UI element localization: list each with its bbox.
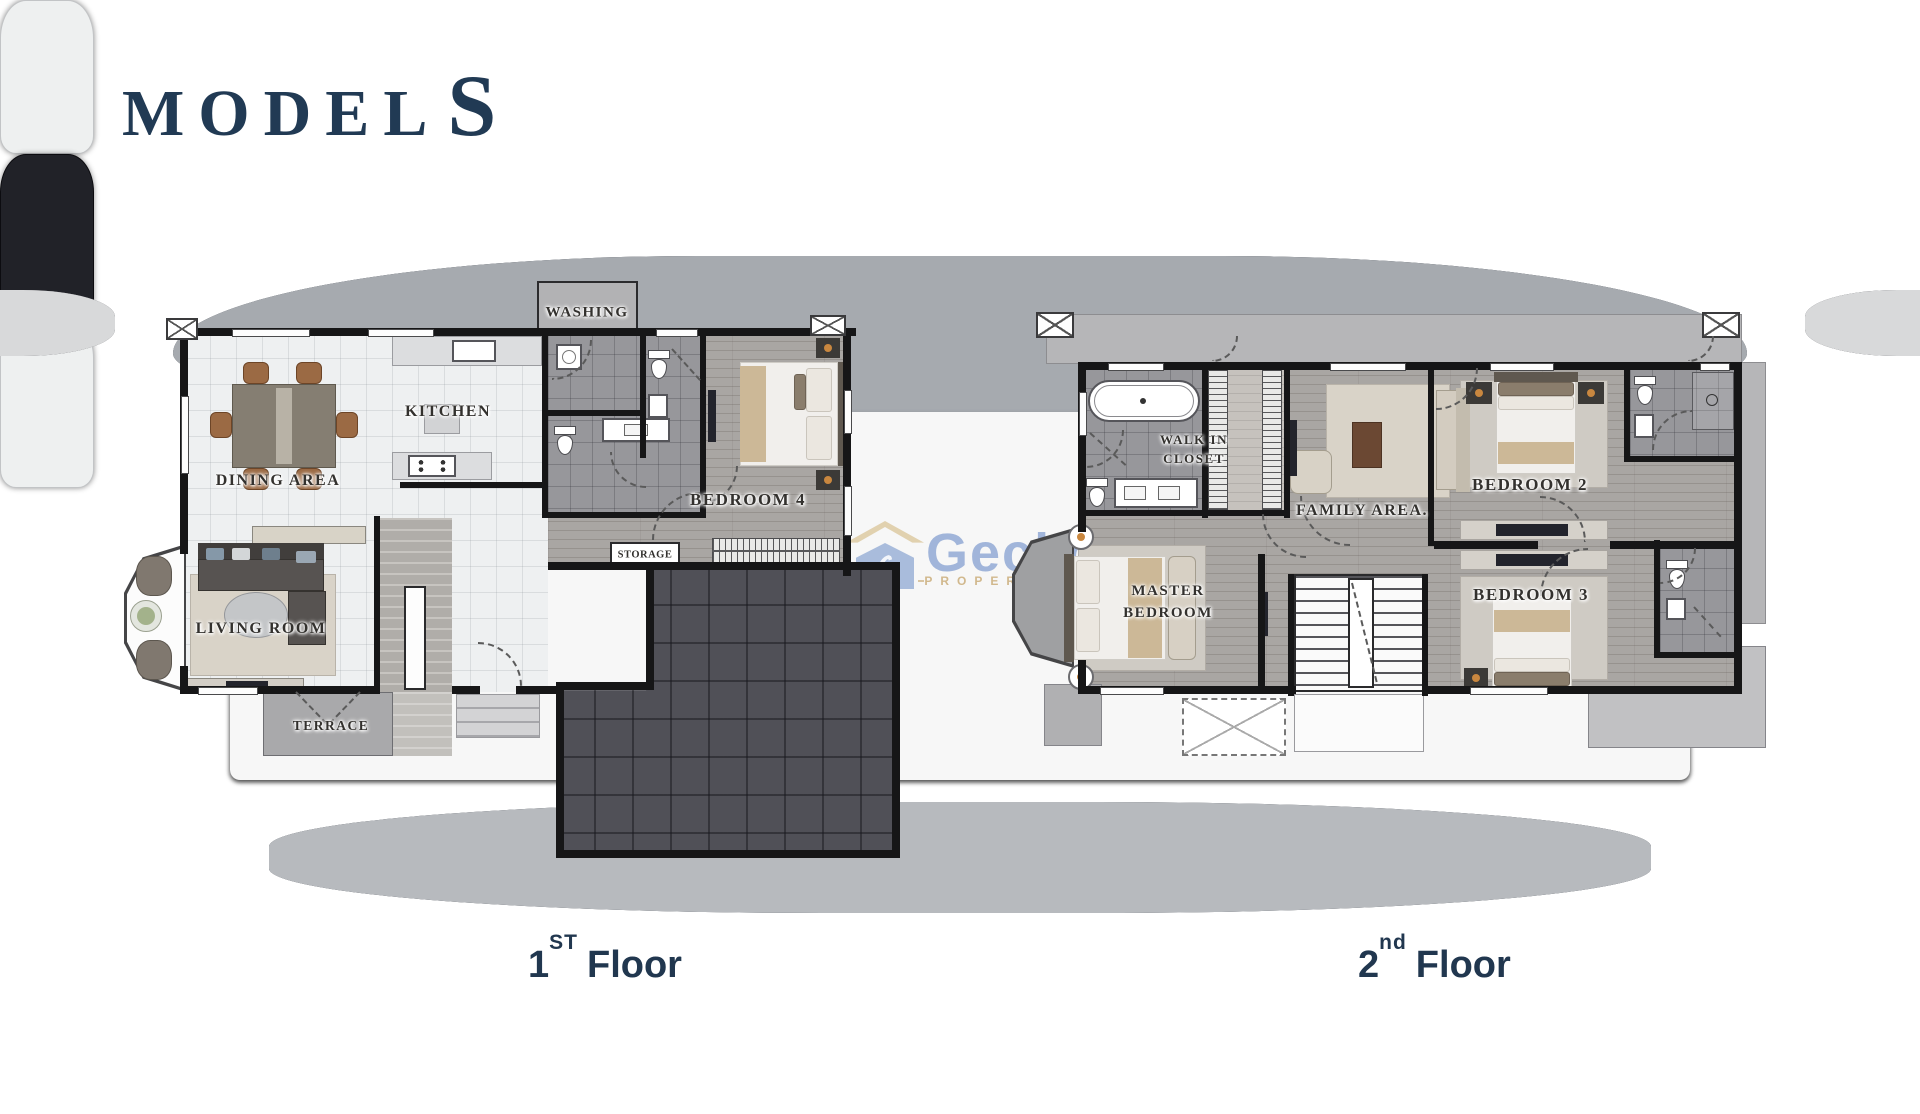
room-label-family: FAMILY AREA. — [1296, 502, 1428, 520]
sideboard — [252, 526, 366, 544]
wall-segment — [1258, 554, 1265, 694]
wall-segment — [1428, 362, 1434, 546]
balcony-outline — [1182, 698, 1286, 756]
table-runner — [276, 388, 292, 464]
lamp — [1587, 389, 1595, 397]
page-title: MODEL S — [122, 56, 496, 157]
tv — [708, 390, 716, 442]
master-line2: BEDROOM — [1123, 602, 1213, 624]
window-marker — [1700, 363, 1730, 371]
wardrobe — [1262, 370, 1282, 510]
cushion — [296, 551, 316, 563]
window-marker — [198, 687, 258, 695]
floor1-caption: 1STFloor — [528, 944, 682, 987]
wall-segment — [646, 566, 654, 690]
armchair — [136, 640, 172, 680]
stair-rail2 — [1348, 578, 1374, 688]
walkin-line2: CLOSET — [1160, 449, 1228, 468]
wall-segment — [892, 566, 900, 858]
cushion — [206, 548, 224, 560]
bed-blanket — [740, 366, 766, 462]
stove — [408, 455, 456, 477]
dining-chair — [336, 412, 358, 438]
lamp — [824, 344, 832, 352]
wall-segment — [1078, 362, 1086, 532]
pillow — [1076, 608, 1100, 652]
window-marker — [368, 329, 434, 337]
sink-basin — [1124, 486, 1146, 500]
toilet — [648, 350, 670, 359]
wall-segment — [1284, 362, 1290, 518]
lamp — [1077, 533, 1085, 541]
pillow — [806, 416, 832, 460]
wall-segment — [400, 482, 548, 488]
pillow — [1494, 672, 1570, 686]
wall-segment — [1078, 362, 1742, 370]
pillow — [1076, 560, 1100, 604]
floor2-caption: 2ndFloor — [1358, 944, 1511, 987]
window-marker — [844, 486, 852, 536]
pillow — [794, 374, 806, 410]
room-label-dining: DINING AREA — [216, 472, 341, 490]
chimney-box — [1036, 312, 1074, 338]
floor1-word: Floor — [587, 944, 682, 986]
lamp — [1472, 674, 1480, 682]
title-s: S — [447, 56, 496, 157]
toilet — [1086, 478, 1108, 487]
bed-headboard — [1064, 554, 1074, 662]
chimney-box — [166, 318, 198, 340]
wall-segment — [374, 516, 380, 694]
sink — [1634, 414, 1654, 438]
wall-segment — [640, 328, 646, 458]
lamp — [1475, 389, 1483, 397]
wall-segment — [548, 410, 644, 416]
wall-segment — [1078, 510, 1290, 516]
pillow — [806, 368, 832, 412]
wall-segment — [1422, 574, 1428, 696]
room-label-washing: WASHING — [545, 305, 628, 322]
floor2-ordinal: nd — [1379, 931, 1407, 954]
coffee-table — [1352, 422, 1382, 468]
sink-basin — [1158, 486, 1180, 500]
window-marker — [1490, 363, 1554, 371]
sofa — [198, 559, 324, 591]
room-label-walkin: WALK IN CLOSET — [1160, 430, 1228, 468]
lamp — [824, 476, 832, 484]
pillow — [1494, 658, 1570, 672]
pillow — [1498, 382, 1574, 396]
tub-faucet — [1140, 398, 1146, 404]
bed-headboard — [1494, 372, 1578, 382]
stair-rail — [404, 586, 426, 690]
window-marker — [656, 329, 698, 337]
window-marker — [232, 329, 310, 337]
walkin-line1: WALK IN — [1160, 430, 1228, 449]
floor1-ordinal: ST — [549, 931, 578, 954]
floor2-number: 2 — [1358, 944, 1379, 986]
wall-segment — [1434, 541, 1538, 549]
bed-blanket — [1494, 610, 1570, 632]
floorplan-sheet: { "page": { "title_main": "MODEL", "titl… — [0, 0, 1920, 1114]
roof-band — [1046, 314, 1742, 364]
window-marker — [844, 390, 852, 434]
window-marker — [181, 396, 189, 474]
room-label-master: MASTER BEDROOM — [1123, 580, 1213, 624]
car-white-left — [0, 0, 94, 154]
room-label-storage: STORAGE — [618, 550, 673, 561]
room-label-bedroom4: BEDROOM 4 — [690, 490, 806, 510]
toilet — [554, 426, 576, 435]
dining-chair — [210, 412, 232, 438]
title-model: MODEL — [122, 76, 441, 152]
armchair — [136, 556, 172, 596]
wall-segment — [556, 850, 900, 858]
wall-segment — [556, 682, 652, 690]
dining-chair — [296, 362, 322, 384]
room-label-bedroom2: BEDROOM 2 — [1472, 475, 1588, 495]
sink — [648, 394, 668, 418]
floor1-number: 1 — [528, 944, 549, 986]
room-label-terrace: TERRACE — [293, 718, 370, 734]
master-line1: MASTER — [1123, 580, 1213, 602]
bed-blanket — [1498, 442, 1574, 464]
wall-segment — [452, 686, 480, 694]
plant — [137, 607, 155, 625]
sink — [1666, 598, 1686, 620]
kitchen-sink — [452, 340, 496, 362]
wall-segment — [516, 686, 556, 694]
chimney-box — [810, 315, 846, 336]
wall-segment — [1288, 574, 1294, 696]
cushion — [232, 548, 250, 560]
entry-steps — [456, 694, 540, 738]
window-marker — [1330, 363, 1406, 371]
wall-segment — [556, 682, 564, 858]
wall-segment — [1654, 652, 1742, 658]
shower-drain — [1706, 394, 1718, 406]
floor2-word: Floor — [1416, 944, 1511, 986]
chimney-box — [1702, 312, 1740, 338]
room-label-bedroom3: BEDROOM 3 — [1473, 585, 1589, 605]
dining-chair — [243, 362, 269, 384]
cushion — [262, 548, 280, 560]
toilet — [1634, 376, 1656, 385]
wall-segment — [843, 328, 851, 576]
wardrobe-line — [712, 550, 840, 552]
stairwell-void — [1294, 694, 1424, 752]
wall-segment — [542, 328, 548, 518]
wall-segment — [548, 562, 900, 570]
window-marker — [1108, 363, 1164, 371]
pillow — [1498, 396, 1574, 410]
wall-segment — [1624, 362, 1630, 462]
wall-segment — [1624, 456, 1742, 462]
wall-segment — [1734, 362, 1742, 694]
room-label-kitchen: KITCHEN — [405, 403, 491, 421]
room-label-living: LIVING ROOM — [196, 620, 327, 638]
window-marker — [1100, 687, 1164, 695]
car-white-right — [0, 320, 94, 488]
window-marker — [1470, 687, 1548, 695]
